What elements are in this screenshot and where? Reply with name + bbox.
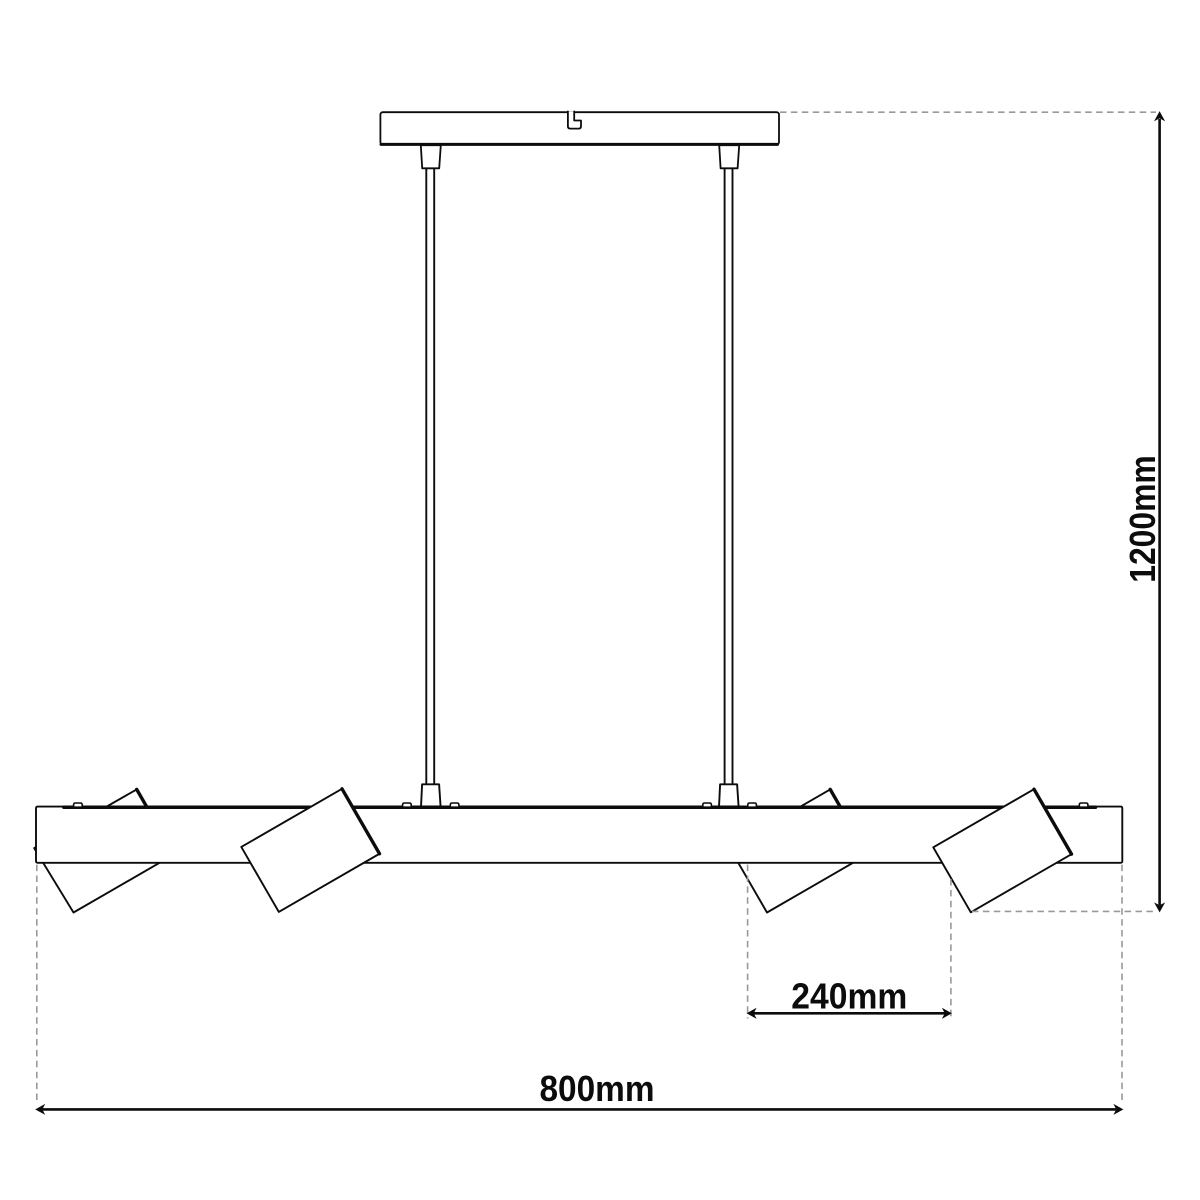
svg-text:800mm: 800mm	[540, 1068, 655, 1109]
svg-text:240mm: 240mm	[791, 976, 907, 1017]
svg-text:1200mm: 1200mm	[1122, 455, 1163, 583]
